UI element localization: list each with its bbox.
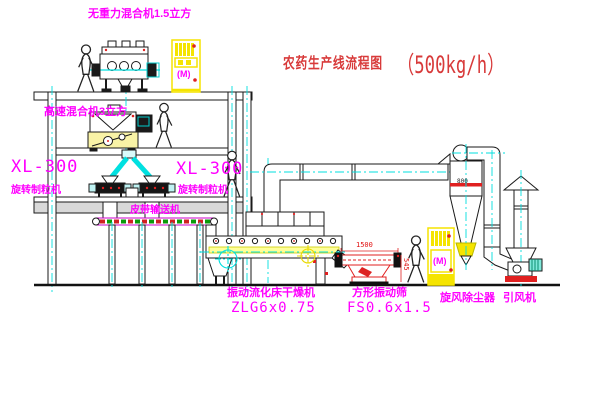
label-sieve-model: FS0.6x1.5: [347, 301, 432, 315]
motor-symbol-right-cabinet: (M): [433, 257, 447, 266]
label-dryer-name: 振动流化床干燥机: [227, 288, 315, 299]
cad-flow-diagram: 农药生产线流程图 （500kg/h） 无重力混合机1.5立方 高速混合机3立方 …: [0, 0, 600, 403]
granulator-left: [89, 176, 131, 197]
label-granulator-name-left: 旋转制粒机: [11, 186, 61, 196]
motor-symbol-top-cabinet: (M): [177, 70, 191, 79]
label-dryer-model: ZLG6x0.75: [231, 301, 316, 315]
dimension-sieve-height: 545: [402, 258, 409, 271]
label-sieve-name: 方形振动筛: [352, 288, 407, 299]
label-gravity-mixer: 无重力混合机1.5立方: [88, 9, 191, 20]
label-granulator-model-left: XL-300: [11, 159, 78, 176]
granulator-right: [133, 176, 175, 197]
dimension-sieve-length: 1500: [356, 242, 373, 249]
induced-draft-fan: [505, 259, 542, 282]
label-high-speed-mixer: 高速混合机3立方: [44, 107, 127, 118]
label-belt-conveyor: 皮带输送机: [130, 206, 180, 216]
title-text: 农药生产线流程图: [283, 52, 383, 73]
label-granulator-name-right: 旋转制粒机: [178, 186, 228, 196]
exhaust-duct: [250, 164, 455, 216]
control-cabinet-top: [172, 40, 200, 92]
worker-figure-ground: [408, 236, 425, 282]
label-fan: 引风机: [503, 293, 536, 304]
dimension-cyclone-diameter: 800: [457, 179, 468, 185]
label-cyclone: 旋风除尘器: [440, 293, 495, 304]
diagram-title: 农药生产线流程图 （500kg/h）: [283, 48, 546, 76]
title-capacity: （500kg/h）: [397, 45, 504, 80]
worker-figure-second-floor: [156, 103, 172, 147]
granulator-center-box: [126, 188, 138, 197]
gravity-free-mixer-machine: [88, 41, 160, 92]
label-granulator-model-right: XL-300: [176, 161, 243, 178]
fluid-bed-dryer: [200, 212, 352, 284]
